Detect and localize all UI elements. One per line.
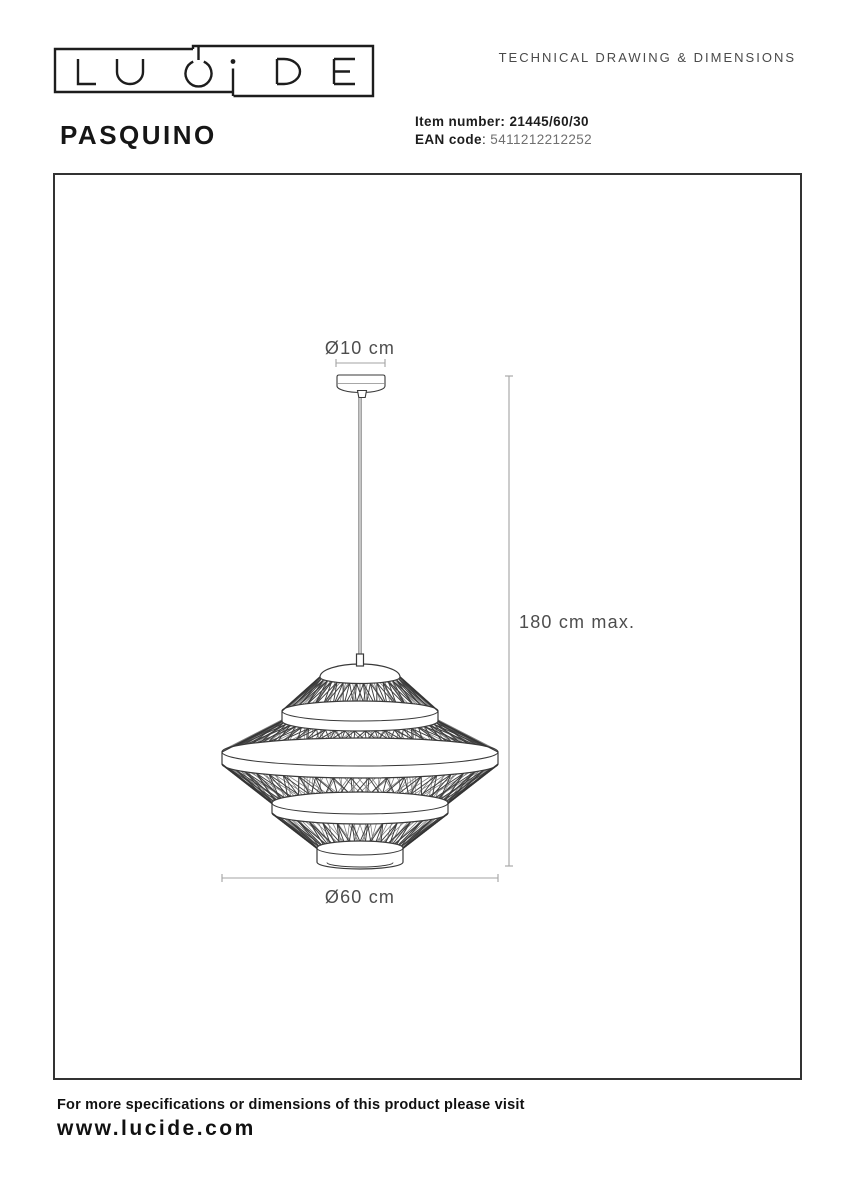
pendant-lamp-drawing	[55, 175, 800, 1078]
ean-value: 5411212212252	[490, 132, 592, 147]
ean-row: EAN code: 5411212212252	[415, 131, 592, 149]
technical-drawing-sheet: TECHNICAL DRAWING & DIMENSIONS PASQUINO …	[0, 0, 848, 1200]
logo-letter-c	[186, 62, 212, 87]
logo-letter-e	[334, 59, 355, 84]
doc-title: TECHNICAL DRAWING & DIMENSIONS	[499, 50, 796, 65]
product-name: PASQUINO	[60, 120, 217, 151]
ean-label: EAN code	[415, 132, 482, 147]
height-label: 180 cm max.	[519, 612, 635, 633]
canopy-diameter-label: Ø10 cm	[260, 338, 460, 359]
website-url: www.lucide.com	[57, 1117, 525, 1141]
item-number-row: Item number: 21445/60/30	[415, 113, 592, 131]
footer: For more specifications or dimensions of…	[57, 1097, 525, 1141]
lucide-logo	[53, 44, 375, 98]
logo-letter-u	[117, 59, 143, 84]
diameter-label: Ø60 cm	[260, 887, 460, 908]
drawing-frame: Ø10 cm 180 cm max. Ø60 cm	[53, 173, 802, 1080]
item-number-label: Item number:	[415, 114, 505, 129]
item-number-value: 21445/60/30	[509, 114, 588, 129]
logo-letter-l	[78, 59, 96, 84]
logo-letter-i-dot	[231, 59, 236, 64]
ean-colon: :	[482, 132, 486, 147]
logo-letter-d	[277, 59, 300, 84]
footer-note: For more specifications or dimensions of…	[57, 1097, 525, 1113]
product-codes: Item number: 21445/60/30 EAN code: 54112…	[415, 113, 592, 148]
